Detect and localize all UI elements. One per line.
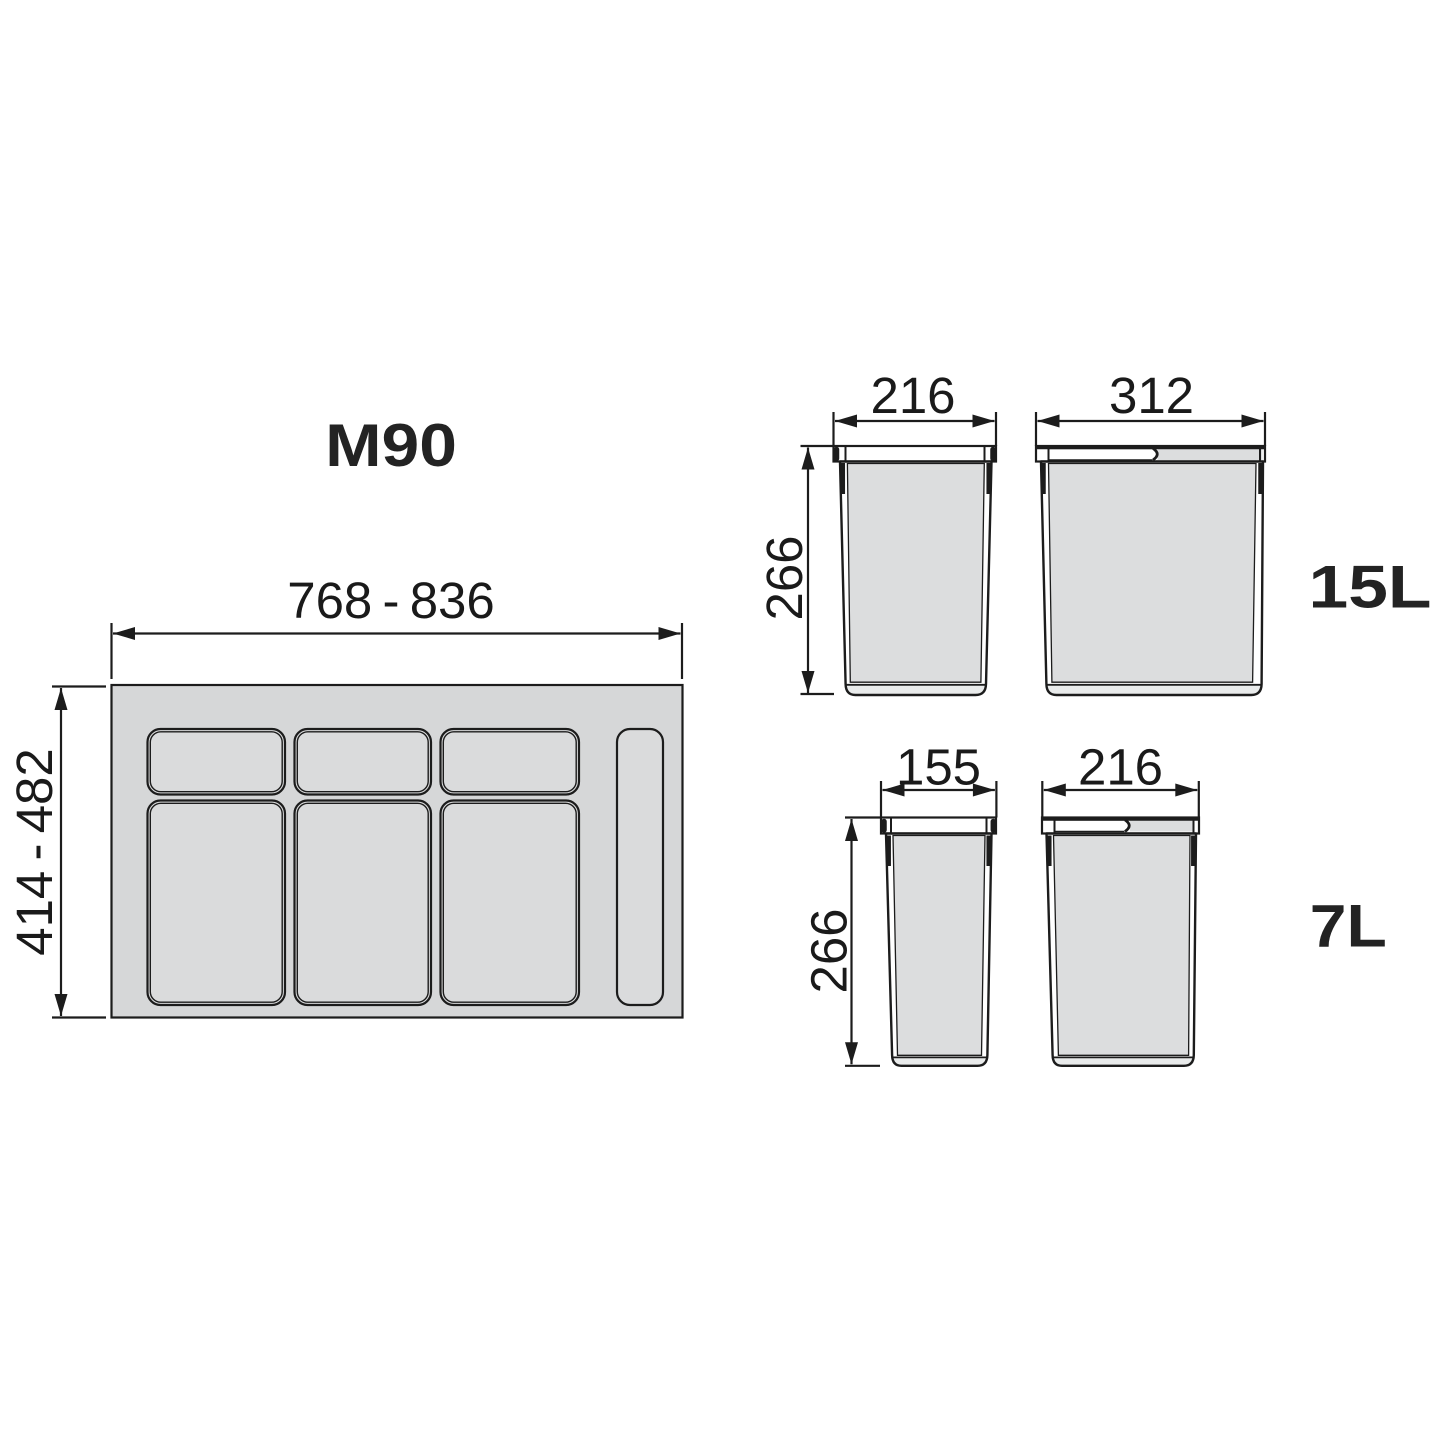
svg-text:216: 216 bbox=[1078, 739, 1163, 796]
svg-text:15L: 15L bbox=[1308, 553, 1431, 620]
svg-text:M90: M90 bbox=[325, 412, 457, 479]
svg-text:155: 155 bbox=[896, 739, 981, 796]
svg-text:768 - 836: 768 - 836 bbox=[287, 572, 495, 629]
svg-text:216: 216 bbox=[870, 367, 955, 424]
svg-text:266: 266 bbox=[756, 535, 813, 620]
svg-text:414 - 482: 414 - 482 bbox=[6, 748, 63, 956]
svg-text:266: 266 bbox=[801, 908, 858, 993]
svg-text:7L: 7L bbox=[1310, 893, 1387, 960]
svg-text:312: 312 bbox=[1109, 367, 1194, 424]
